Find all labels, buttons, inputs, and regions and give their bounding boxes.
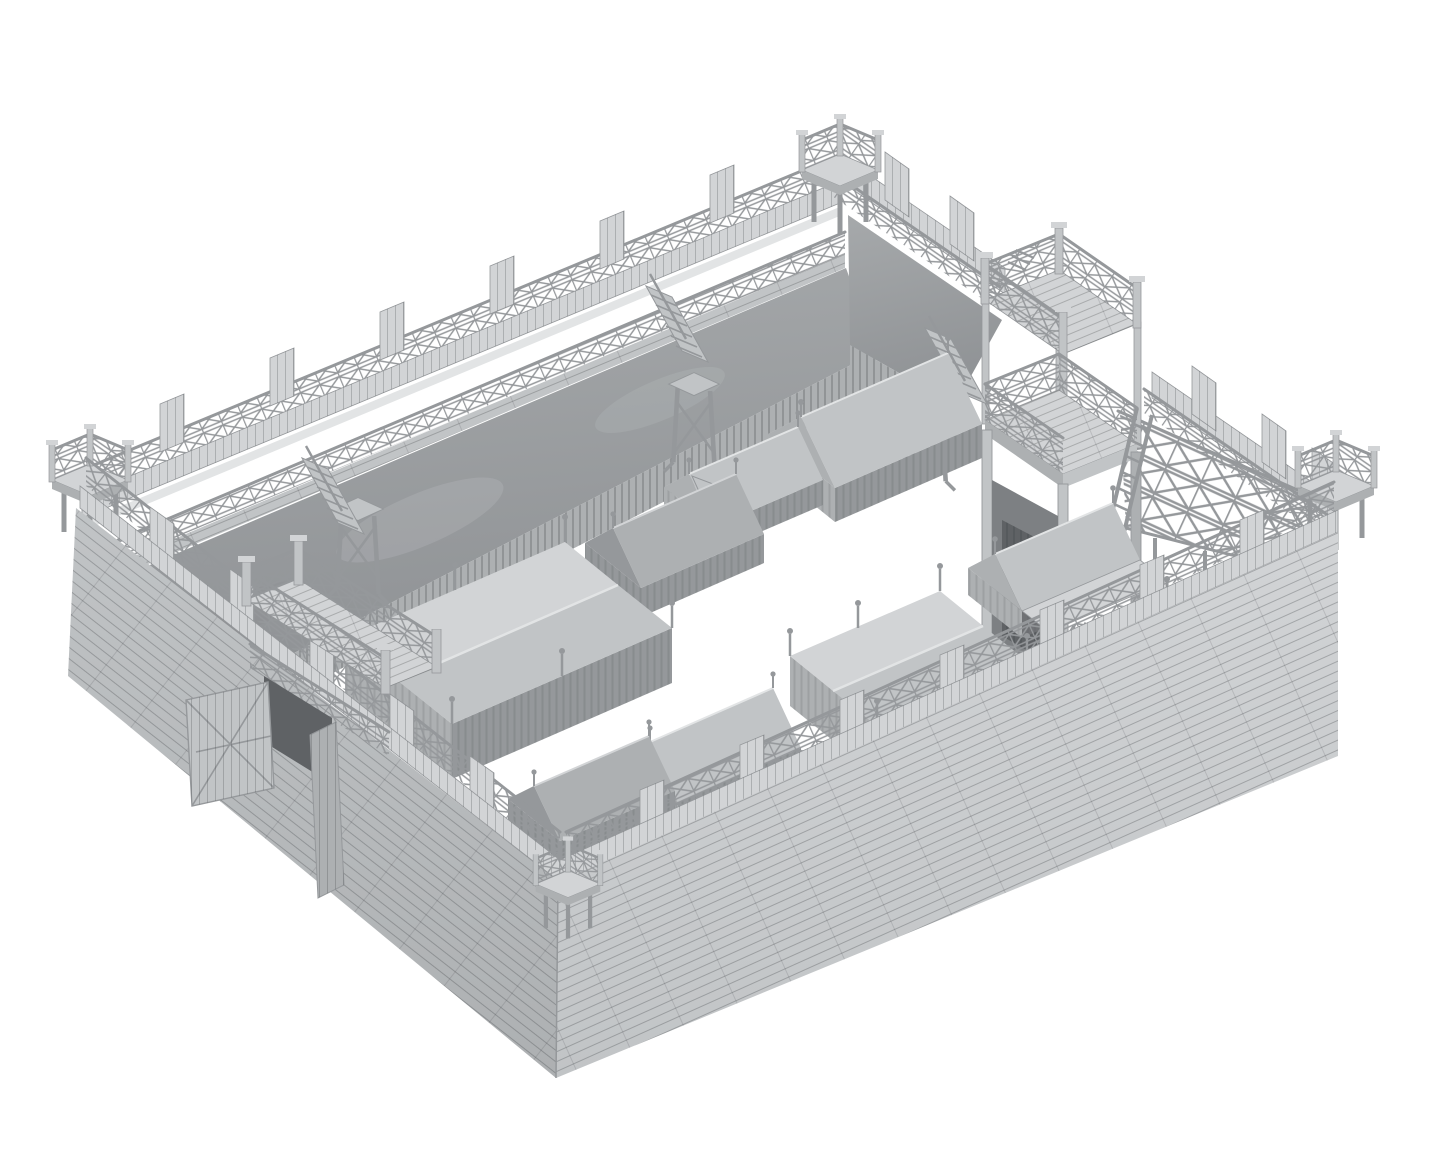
crenel-panel [160,394,184,452]
fort-render: Monochrome 3D render of a wooden palisad… [0,0,1445,1156]
render-canvas: Monochrome 3D render of a wooden palisad… [0,0,1445,1156]
